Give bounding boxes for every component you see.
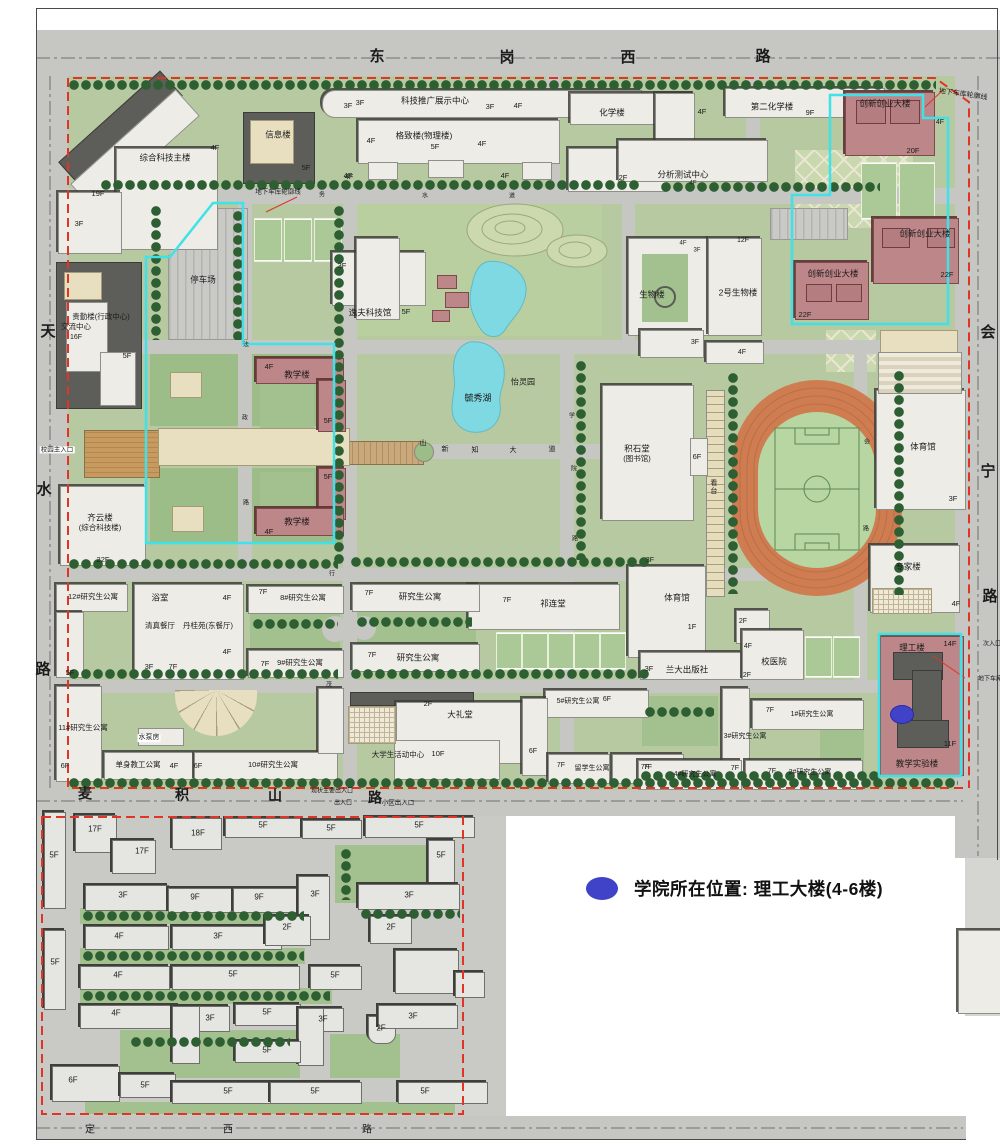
map-label: 2F	[743, 672, 751, 680]
map-label: 贵勤楼(行政中心)	[72, 313, 130, 321]
res-building	[85, 926, 169, 950]
map-label: 7F	[368, 651, 377, 659]
avenue-char: 山	[420, 440, 427, 448]
building-court	[64, 272, 102, 300]
map-label: 14F	[944, 640, 957, 648]
building-huodong-zhongxin	[394, 740, 500, 780]
tree-row	[68, 668, 338, 680]
basketball-court	[600, 632, 626, 670]
inner-road-char: 路	[572, 537, 578, 544]
central-axis-plaza	[158, 428, 350, 466]
res-building	[455, 972, 485, 998]
map-label: 教学楼	[284, 370, 310, 379]
map-label: 9#研究生公寓	[277, 659, 323, 667]
tennis-court	[284, 218, 312, 262]
avenue-char: 新	[442, 446, 449, 454]
map-label: 3F	[949, 495, 958, 503]
map-label: 4F	[367, 137, 376, 145]
map-label: 8#研究生公寓	[280, 594, 326, 602]
tree-row	[100, 179, 640, 191]
map-label: 4F	[265, 363, 274, 371]
map-label: 3F	[486, 103, 495, 111]
map-label: 逸夫科技馆	[349, 308, 392, 317]
tree-row	[82, 950, 304, 962]
map-label: 兰大出版社	[666, 665, 709, 674]
map-label: 信息楼	[265, 130, 291, 139]
map-label: 22F	[941, 271, 954, 279]
map-label: 2F	[376, 1025, 385, 1034]
map-label: 5F	[258, 822, 267, 831]
inner-road-char: 政	[242, 416, 248, 423]
map-label: 4F	[679, 241, 686, 248]
map-label: 教学实验楼	[896, 759, 939, 768]
basketball-court	[522, 632, 548, 670]
tree-row	[350, 556, 650, 568]
map-label: 研究生公寓	[397, 653, 440, 662]
tree-row	[644, 706, 714, 718]
map-label: 6F	[603, 696, 611, 704]
map-label: 体育馆	[664, 593, 690, 602]
pavilion	[170, 372, 202, 398]
map-label: 3F	[145, 663, 154, 671]
res-building	[80, 1005, 180, 1029]
road-east-char: 路	[982, 589, 997, 606]
garage-outline-label: 地下车库	[978, 677, 1000, 684]
inner-road-char: 会	[864, 440, 870, 447]
building	[428, 160, 464, 178]
road-south-char: 麦	[78, 786, 92, 801]
inner-road-char: 路	[863, 527, 869, 534]
map-label: 3F	[645, 665, 654, 673]
basketball-court	[548, 632, 574, 670]
legend: 学院所在位置: 理工大楼(4-6楼)	[586, 876, 883, 901]
inner-road-char: 院	[571, 467, 577, 474]
avenue-char: 知	[472, 447, 479, 455]
map-label: 11#研究生公寓	[58, 724, 107, 732]
map-label: 17F	[88, 826, 102, 835]
map-label: 5F	[140, 1082, 149, 1091]
map-label: 4F	[223, 648, 232, 656]
inner-road-char: 行	[329, 572, 335, 579]
map-label: 4F	[113, 972, 122, 981]
entrance-label: 出入口	[334, 801, 352, 808]
map-label: 4F	[514, 102, 523, 110]
tree-row	[82, 990, 330, 1002]
map-label: 3F	[404, 892, 413, 901]
entrance-label: 小区出入口	[382, 799, 415, 806]
tree-row	[575, 360, 587, 560]
map-label: 7F	[261, 660, 270, 668]
map-label: 22F	[799, 311, 812, 319]
map-label: 4F	[689, 181, 696, 188]
map-label: 5F	[420, 1088, 429, 1097]
road-tianshui	[36, 76, 68, 790]
inner-road-char: 法	[243, 343, 249, 350]
map-label: 体育馆	[910, 442, 936, 451]
inner-road-char: 务	[319, 193, 325, 200]
building-jiaoxue-shiyanlou	[897, 720, 949, 748]
tree-row	[333, 205, 345, 565]
map-label: 18F	[191, 830, 205, 839]
map-label: 6F	[529, 748, 537, 756]
tree-row	[82, 910, 304, 922]
map-label: 4F	[344, 172, 353, 180]
res-building	[52, 1066, 120, 1102]
frame-line	[36, 1139, 966, 1140]
map-label: 5F	[223, 1088, 232, 1097]
tree-row	[350, 668, 650, 680]
map-label: 2#研究生公寓	[789, 769, 832, 777]
inner-road-char: 道	[509, 194, 515, 201]
building	[522, 162, 552, 180]
tree-row	[356, 616, 472, 628]
road-donggangxi	[36, 30, 1000, 76]
map-label: 1#研究生公寓	[791, 711, 834, 719]
garage-outline-label: 地下车库轮廓线	[255, 188, 301, 195]
map-label: 综合科技主楼	[139, 153, 190, 162]
road-west-char: 水	[36, 482, 51, 499]
res-building	[44, 812, 66, 909]
map-label: 专家楼	[895, 562, 921, 571]
map-label: 5F	[330, 972, 339, 981]
tree-row	[150, 205, 162, 340]
building-gezhilou	[358, 120, 560, 164]
map-label: 5F	[49, 852, 58, 861]
building	[58, 192, 122, 254]
road-outer-char: 路	[362, 1125, 372, 1136]
map-label: 3F	[344, 102, 353, 110]
map-label: 17F	[135, 848, 149, 857]
tennis-court	[805, 636, 832, 678]
map-label: 10#研究生公寓	[248, 761, 298, 769]
map-label: 5F	[310, 1088, 319, 1097]
map-label: 教学楼	[284, 517, 310, 526]
campus-map: 东岗西路天水路会宁路麦积山路定西路综合科技主楼19F3F4F信息楼5F4F3F科…	[0, 0, 1000, 1147]
pavilion	[172, 506, 204, 532]
map-label: 6F	[194, 762, 203, 770]
res-building	[398, 1082, 488, 1104]
road-west-char: 天	[40, 324, 55, 341]
legend-text: 学院所在位置: 理工大楼(4-6楼)	[634, 876, 883, 901]
map-label: 3F	[408, 1013, 417, 1022]
grid-plaza	[348, 706, 396, 744]
road-outer-char: 西	[223, 1125, 233, 1136]
map-label: 格致楼(物理楼)	[396, 131, 453, 140]
map-label: 5F	[228, 971, 237, 980]
map-label: 2F	[739, 618, 747, 626]
map-label: 7F	[365, 589, 374, 597]
map-label: 3F	[356, 99, 365, 107]
frame-line	[997, 8, 998, 860]
lake-label: 毓秀湖	[464, 394, 491, 404]
map-label: 5F	[431, 143, 440, 151]
frame-line	[36, 8, 998, 9]
inner-road-char: 学	[569, 414, 575, 421]
courtyard	[260, 472, 314, 508]
pavilion	[432, 310, 450, 322]
road-north-char: 东	[369, 49, 384, 66]
avenue-char: 大	[510, 447, 517, 455]
map-label: 7F	[259, 588, 268, 596]
map-label: 留学生公寓	[575, 765, 610, 773]
map-label: 16F	[70, 334, 82, 342]
map-label: 2F	[424, 700, 433, 708]
map-label: 1F	[688, 623, 697, 631]
map-label: 19F	[92, 190, 105, 198]
map-label: 科技推广展示中心	[401, 96, 469, 105]
map-label: 4#研究生公寓	[674, 771, 717, 779]
tennis-court	[833, 636, 860, 678]
map-label: 3F	[213, 933, 222, 942]
map-label: 大学生活动中心	[372, 751, 425, 759]
map-label: 6F	[68, 1077, 77, 1086]
frame-line	[36, 8, 37, 1140]
map-label: 6F	[61, 762, 70, 770]
map-label: 化学楼	[599, 108, 625, 117]
college-location-marker	[890, 705, 914, 724]
map-label: 5#研究生公寓	[557, 698, 600, 706]
map-label: 4F	[744, 643, 752, 651]
map-label: 分析测试中心	[657, 170, 708, 179]
map-label: 9F	[806, 109, 815, 117]
building-xinxilou-court	[250, 120, 294, 164]
map-label: 4F	[478, 140, 487, 148]
map-label: 5F	[123, 352, 132, 360]
map-label: 7F	[768, 768, 776, 776]
road-south-char: 路	[368, 790, 382, 805]
map-label: 2F	[619, 174, 628, 182]
res-building	[378, 1005, 458, 1029]
tree-row	[727, 372, 739, 594]
building-tiyuguan-south	[628, 566, 706, 658]
map-label: 交流中心	[61, 323, 91, 331]
map-label: 5F	[262, 1009, 271, 1018]
road-south-char: 山	[268, 788, 282, 803]
map-label: 6F	[693, 453, 702, 461]
map-label: 4F	[114, 933, 123, 942]
map-label: 12F	[737, 237, 749, 245]
map-label: 2号生物楼	[719, 288, 758, 297]
tree-row	[68, 79, 936, 91]
map-label: 积石堂	[624, 444, 650, 453]
map-label: 清真餐厅	[145, 622, 175, 630]
basketball-court	[496, 632, 522, 670]
building	[706, 342, 764, 364]
map-label: 创新创业大楼	[859, 99, 910, 108]
inner-road-char: 茂	[326, 683, 332, 690]
map-label: 3F	[646, 557, 654, 565]
map-label: 5F	[324, 417, 333, 425]
main-entrance-plaza	[84, 430, 160, 478]
map-label: 创新创业大楼	[807, 269, 858, 278]
map-label: 怡灵园	[511, 379, 535, 388]
map-label: 4F	[111, 1010, 120, 1019]
map-label: 7F	[766, 707, 774, 715]
map-label: 3F	[118, 892, 127, 901]
avenue-char: 道	[549, 446, 556, 454]
map-label: 9F	[190, 894, 199, 903]
map-label: 3F	[693, 248, 700, 255]
courtyard	[642, 696, 718, 746]
road-south-char: 积	[175, 787, 189, 802]
map-label: 看台	[709, 479, 717, 495]
map-label: 创新创业大楼	[899, 229, 950, 238]
map-label: 校医院	[761, 657, 787, 666]
res-building	[172, 1006, 200, 1064]
inner-road-char: 路	[243, 501, 249, 508]
road-north-char: 岗	[499, 50, 514, 67]
road-east-char: 宁	[980, 464, 995, 481]
basketball-court	[574, 632, 600, 670]
tennis-court	[254, 218, 282, 262]
map-label: 7F	[644, 764, 652, 772]
map-label: 5F	[402, 308, 411, 316]
map-label: 停车场	[190, 275, 216, 284]
entrance-label: 次入口	[983, 642, 1000, 649]
map-label: 7F	[169, 663, 178, 671]
tennis-court	[899, 162, 935, 220]
map-label: 4F	[211, 144, 220, 152]
axis-bridge	[346, 441, 424, 465]
map-label: 4F	[952, 600, 961, 608]
map-label: 祁连堂	[540, 599, 566, 608]
courtyard	[260, 384, 314, 428]
map-label: 4F	[936, 119, 944, 127]
res-tower	[112, 840, 156, 874]
map-label: 20F	[907, 147, 920, 155]
legend-location-dot	[586, 877, 618, 900]
map-label: 22F	[97, 556, 110, 564]
building-zonghe-keji-main	[116, 148, 218, 250]
map-label: 4F	[223, 594, 232, 602]
map-label: 研究生公寓	[399, 592, 442, 601]
inner-road	[68, 340, 955, 354]
building-roof	[806, 284, 832, 302]
main-entrance-label: 校园主入口	[40, 446, 75, 453]
map-label: 5F	[326, 825, 335, 834]
road-north-char: 路	[755, 49, 770, 66]
map-label: 5F	[262, 1047, 271, 1056]
map-label: 3F	[691, 339, 699, 347]
map-label: 3F	[205, 1015, 214, 1024]
pavilion	[445, 292, 469, 308]
inner-road-char: 水	[422, 194, 428, 201]
pavilion	[437, 275, 457, 289]
map-label: 3#研究生公寓	[724, 733, 767, 741]
road-west-char: 路	[35, 662, 50, 679]
map-label: 大礼堂	[447, 710, 473, 719]
tree-row	[360, 908, 460, 920]
terrace-steps	[878, 352, 962, 394]
building	[368, 162, 398, 180]
map-label: 丹桂苑(东餐厅)	[183, 622, 233, 630]
map-label: 4F	[501, 172, 510, 180]
map-label: 浴室	[151, 593, 168, 602]
road-north-char: 西	[620, 50, 635, 67]
map-label: 12#研究生公寓	[68, 593, 118, 601]
map-label: 11F	[944, 740, 956, 748]
map-label: 7F	[503, 596, 512, 604]
map-label: 5F	[302, 164, 311, 172]
map-label: 单身教工公寓	[116, 761, 161, 769]
res-building	[44, 930, 66, 1010]
road-outer-char: 定	[85, 1125, 95, 1136]
map-label: 水泵房	[138, 734, 161, 742]
map-label: 3F	[338, 262, 347, 270]
map-label: (图书馆)	[623, 455, 651, 463]
map-label: 3F	[75, 220, 84, 228]
building-xiaoyiyuan	[742, 630, 804, 680]
map-label: 5F	[436, 852, 445, 861]
map-label: 7F	[731, 765, 739, 773]
map-label: 5F	[50, 959, 59, 968]
map-label: 4F	[170, 762, 179, 770]
tree-row	[340, 848, 352, 900]
map-label: 齐云楼	[87, 513, 113, 522]
map-label: 3F	[310, 891, 319, 900]
road-dingxi	[36, 1116, 966, 1140]
res-building	[80, 966, 170, 990]
map-label: 7F	[557, 762, 565, 770]
map-label: 2F	[282, 924, 291, 933]
map-label: 2F	[386, 924, 395, 933]
map-label: 5F	[66, 669, 75, 677]
map-label: 生物楼	[639, 290, 665, 299]
building-10-gongyu	[318, 688, 344, 754]
map-label: 5F	[414, 822, 423, 831]
map-label: 第二化学楼	[751, 102, 794, 111]
tree-row	[232, 210, 244, 340]
res-building	[395, 950, 459, 994]
map-label: (综合科技楼)	[79, 524, 122, 532]
map-label: 理工楼	[899, 643, 925, 652]
map-label: 10F	[432, 750, 445, 758]
building-offmap	[958, 930, 1000, 1014]
tree-row	[252, 618, 338, 630]
building-roof	[836, 284, 862, 302]
building	[522, 698, 548, 776]
map-label: 9F	[254, 894, 263, 903]
entrance-label: 现状主要出入口	[311, 789, 353, 796]
map-label: 4F	[738, 349, 746, 357]
map-label: 5F	[324, 473, 333, 481]
parking-lot	[770, 208, 848, 240]
map-label: 4F	[698, 108, 707, 116]
road-east-char: 会	[980, 325, 995, 342]
map-label: 3F	[318, 1016, 327, 1025]
map-label: 4F	[265, 528, 274, 536]
